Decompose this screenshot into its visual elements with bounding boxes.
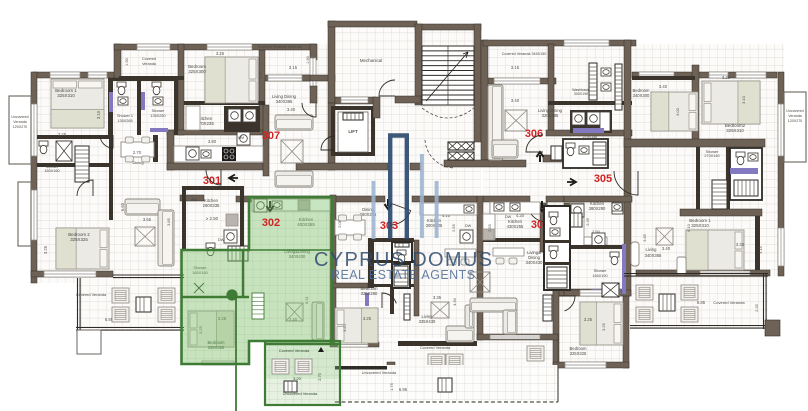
svg-text:3.85: 3.85 (642, 234, 647, 242)
svg-text:2.55: 2.55 (451, 223, 456, 232)
svg-text:6.95: 6.95 (399, 387, 408, 392)
svg-text:3.40: 3.40 (511, 98, 520, 103)
svg-text:LIFT: LIFT (348, 129, 358, 134)
svg-text:Covered Veranda: Covered Veranda (279, 348, 310, 353)
svg-text:Covered: Covered (142, 57, 156, 61)
svg-text:3.50: 3.50 (342, 323, 347, 332)
svg-text:3.15: 3.15 (758, 245, 763, 254)
svg-text:Veranda: Veranda (788, 114, 801, 118)
svg-text:270X140: 270X140 (583, 135, 597, 139)
svg-text:Uncovered Veranda: Uncovered Veranda (362, 370, 397, 375)
svg-text:325X325: 325X325 (570, 351, 587, 356)
svg-text:302: 302 (262, 217, 280, 229)
svg-text:325X260: 325X260 (361, 291, 378, 296)
svg-text:2.05: 2.05 (337, 219, 342, 228)
svg-text:3.40: 3.40 (659, 84, 668, 89)
svg-text:320X395: 320X395 (542, 113, 559, 118)
svg-text:2.55: 2.55 (487, 223, 492, 232)
svg-text:3.25: 3.25 (601, 322, 606, 331)
svg-text:120X270: 120X270 (788, 119, 802, 123)
svg-text:3.25: 3.25 (216, 51, 225, 56)
svg-text:3.25: 3.25 (736, 242, 745, 247)
svg-text:3.25: 3.25 (58, 132, 67, 137)
svg-text:3.40: 3.40 (287, 107, 296, 112)
svg-text:Mechanical: Mechanical (360, 58, 382, 63)
svg-text:6.85: 6.85 (697, 300, 706, 305)
svg-text:Living: Living (646, 247, 658, 252)
svg-text:Uncovered: Uncovered (786, 109, 803, 113)
svg-text:340X430: 340X430 (526, 260, 543, 265)
svg-text:Uncovered Veranda: Uncovered Veranda (283, 391, 318, 396)
svg-text:2.70: 2.70 (317, 372, 322, 380)
svg-text:3.10: 3.10 (741, 95, 746, 104)
svg-text:1.75: 1.75 (389, 382, 394, 391)
svg-text:Covered Veranda: Covered Veranda (76, 292, 107, 297)
svg-text:260X335: 260X335 (203, 203, 220, 208)
svg-text:325X310: 325X310 (57, 93, 75, 98)
svg-text:160X160: 160X160 (44, 169, 59, 173)
svg-text:325X325: 325X325 (70, 237, 88, 242)
svg-text:340X300: 340X300 (633, 93, 650, 98)
svg-text:2.70: 2.70 (133, 150, 142, 155)
svg-text:325X310: 325X310 (726, 128, 744, 133)
svg-text:Uncovered: Uncovered (11, 115, 28, 119)
svg-text:Covered Veranda 345X150: Covered Veranda 345X150 (258, 45, 303, 49)
svg-text:340X365: 340X365 (645, 253, 662, 258)
svg-text:3.40: 3.40 (662, 246, 671, 251)
svg-text:3.15: 3.15 (511, 65, 520, 70)
svg-text:DW: DW (465, 224, 472, 228)
svg-text:Covered Veranda: Covered Veranda (420, 345, 451, 350)
svg-text:Covered Veranda 345X150: Covered Veranda 345X150 (502, 52, 547, 56)
svg-text:3.65: 3.65 (143, 217, 152, 222)
svg-text:Dining: Dining (132, 160, 143, 165)
svg-text:WM: WM (191, 198, 197, 202)
svg-text:135X250: 135X250 (150, 114, 165, 118)
svg-text:306: 306 (525, 128, 543, 140)
svg-text:4.30: 4.30 (452, 297, 457, 306)
svg-text:Veranda: Veranda (142, 62, 157, 66)
svg-text:REAL ESTATE AGENTS: REAL ESTATE AGENTS (331, 268, 475, 282)
svg-text:300X190: 300X190 (574, 92, 588, 96)
svg-text:Covered Veranda: Covered Veranda (713, 300, 745, 305)
svg-text:3.25: 3.25 (363, 316, 372, 321)
svg-text:335X430: 335X430 (419, 319, 436, 324)
svg-text:2.45: 2.45 (585, 218, 590, 226)
svg-text:3.25: 3.25 (584, 317, 593, 322)
svg-text:165X190: 165X190 (592, 274, 607, 278)
svg-text:WM: WM (238, 136, 244, 140)
svg-text:3.35: 3.35 (433, 295, 442, 300)
svg-text:3.00: 3.00 (675, 107, 680, 116)
svg-text:305: 305 (594, 173, 612, 185)
svg-text:380X290: 380X290 (589, 206, 606, 211)
svg-text:3.25: 3.25 (43, 245, 48, 254)
svg-text:6.10: 6.10 (686, 223, 691, 232)
svg-text:Shower 1: Shower 1 (117, 114, 133, 118)
svg-text:6.60: 6.60 (120, 202, 125, 211)
svg-text:3.15: 3.15 (289, 65, 298, 70)
svg-text:3.10: 3.10 (96, 110, 101, 119)
svg-text:270X140: 270X140 (704, 154, 719, 158)
svg-text:Shower: Shower (152, 109, 166, 113)
svg-text:135X265: 135X265 (117, 119, 132, 123)
svg-text:3.80: 3.80 (208, 139, 217, 144)
svg-text:3.00: 3.00 (258, 70, 263, 79)
svg-text:325X310: 325X310 (691, 223, 709, 228)
svg-text:120X270: 120X270 (13, 125, 27, 129)
svg-text:340X365: 340X365 (276, 99, 293, 104)
svg-text:3.85: 3.85 (166, 217, 171, 226)
svg-text:307: 307 (262, 130, 280, 142)
svg-text:2.35: 2.35 (754, 303, 759, 312)
svg-text:430X255: 430X255 (507, 224, 524, 229)
svg-text:Veranda: Veranda (13, 120, 26, 124)
svg-text:1.50: 1.50 (306, 56, 310, 63)
svg-text:300X205: 300X205 (426, 223, 443, 228)
svg-text:3.25: 3.25 (722, 75, 731, 80)
svg-text:1.50: 1.50 (125, 58, 129, 65)
svg-text:3.20: 3.20 (293, 376, 302, 381)
svg-text:325X300: 325X300 (188, 69, 206, 74)
svg-text:Shower: Shower (594, 269, 608, 273)
svg-text:≥ 2.50: ≥ 2.50 (206, 216, 219, 221)
svg-text:DW: DW (505, 215, 512, 219)
